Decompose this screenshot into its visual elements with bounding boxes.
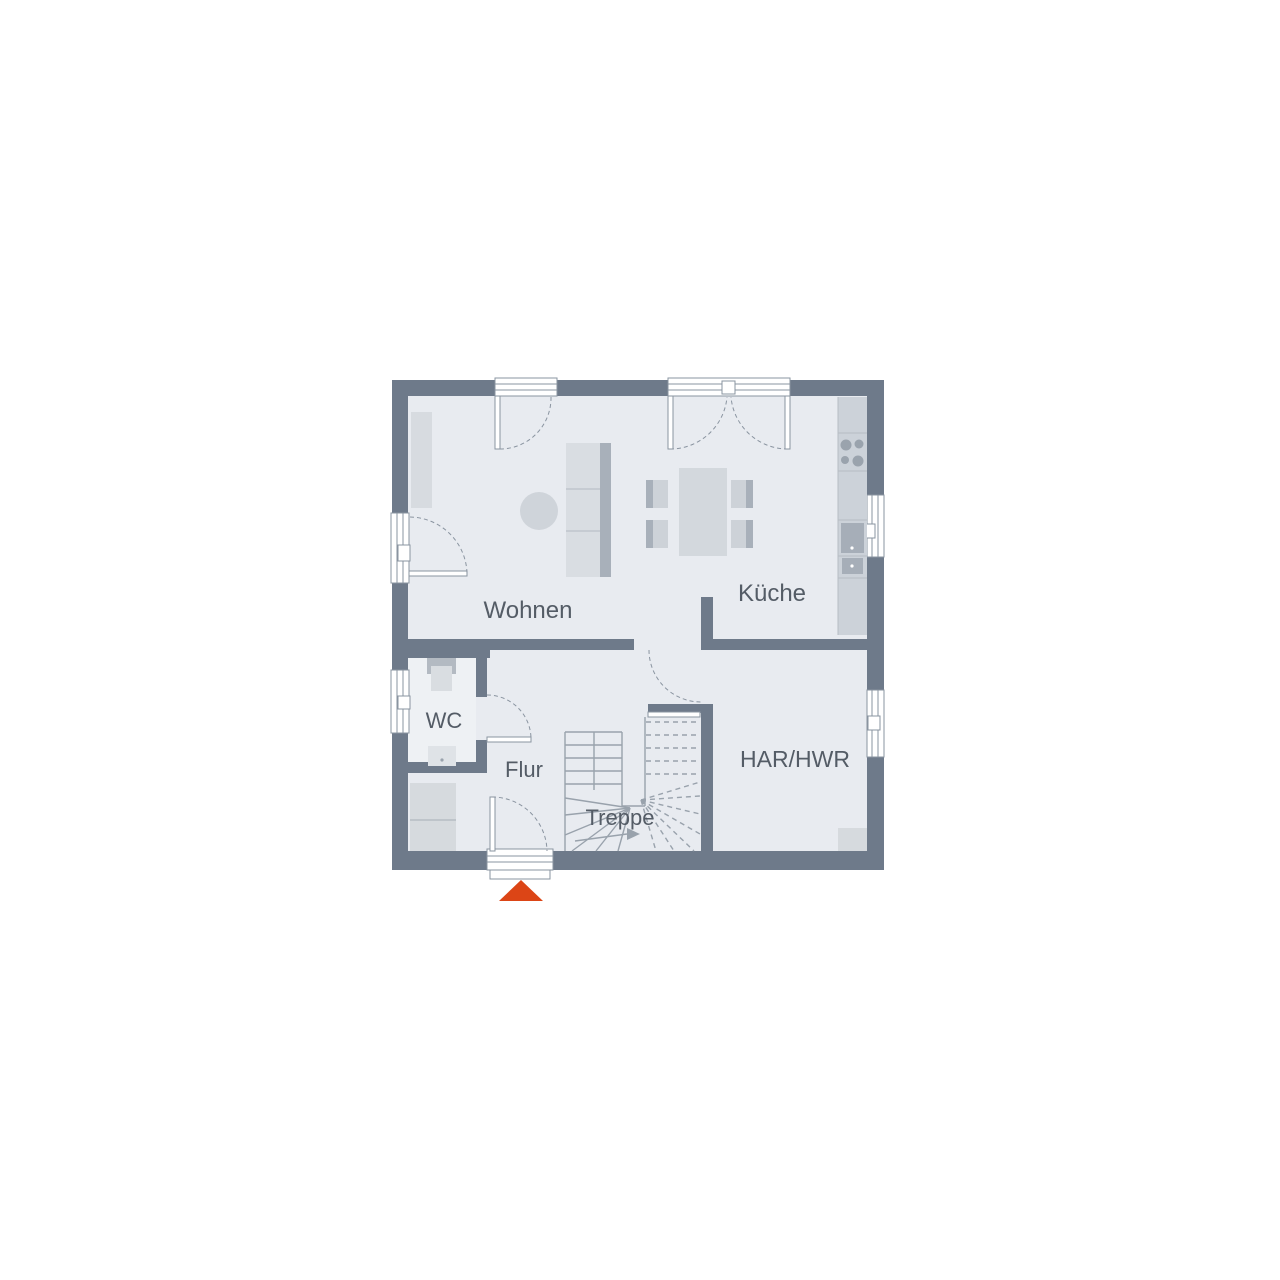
room-label-flur: Flur bbox=[505, 757, 543, 782]
wall-wc-right-upper bbox=[476, 658, 487, 697]
sofa-seat bbox=[566, 443, 600, 577]
wall-main-right bbox=[701, 639, 867, 650]
sideboard bbox=[411, 412, 432, 508]
wc-washbasin bbox=[431, 666, 452, 691]
room-label-wc: WC bbox=[426, 708, 463, 733]
floor-plan-page: Wohnen Küche WC Flur Treppe HAR/HWR bbox=[0, 0, 1280, 1280]
door-leaf-right bbox=[785, 396, 790, 449]
building-shell bbox=[392, 380, 884, 870]
floor-plan-svg: Wohnen Küche WC Flur Treppe HAR/HWR bbox=[0, 0, 1280, 1280]
room-label-kueche: Küche bbox=[738, 580, 806, 607]
room-label-har-hwr: HAR/HWR bbox=[740, 746, 850, 772]
har-appliance bbox=[838, 828, 867, 851]
wall-wohnen-kueche-stub bbox=[701, 597, 713, 639]
door-leaf bbox=[487, 737, 531, 742]
sofa-back bbox=[600, 443, 611, 577]
door-leaf bbox=[409, 571, 467, 576]
door-leaf-left bbox=[668, 396, 673, 449]
wall-stair-right bbox=[701, 713, 713, 851]
room-label-treppe: Treppe bbox=[586, 805, 655, 830]
entrance-arrow bbox=[499, 880, 543, 901]
floor-area bbox=[408, 396, 867, 851]
window-symbol-square bbox=[868, 716, 880, 730]
kitchen-counter bbox=[838, 397, 867, 635]
dining-table bbox=[679, 468, 727, 556]
room-label-wohnen: Wohnen bbox=[484, 597, 573, 624]
wall-wc-top bbox=[408, 647, 490, 658]
wc-toilet bbox=[428, 746, 456, 766]
door-symbol-square bbox=[722, 381, 735, 394]
window-symbol-square bbox=[398, 696, 410, 709]
window-wc bbox=[391, 670, 410, 733]
door-leaf bbox=[490, 797, 495, 851]
entry-threshold bbox=[490, 870, 550, 879]
door-leaf bbox=[495, 396, 500, 449]
door-symbol-square bbox=[398, 545, 410, 561]
window-har-hwr bbox=[867, 690, 884, 757]
entry-wardrobe bbox=[410, 783, 456, 851]
coffee-table bbox=[520, 492, 558, 530]
door-leaf bbox=[648, 712, 700, 717]
